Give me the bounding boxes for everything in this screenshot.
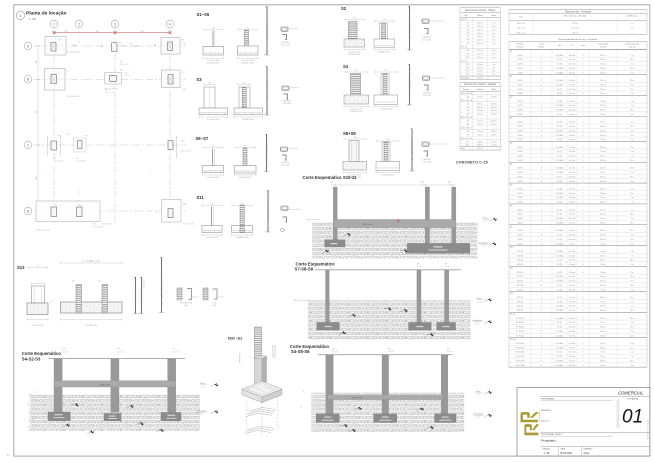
svg-text:8.0 mm: 8.0 mm bbox=[569, 151, 575, 153]
svg-text:8 m: 8 m bbox=[631, 181, 634, 183]
svg-text:6.3 mm: 6.3 mm bbox=[569, 122, 575, 124]
svg-text:19 m: 19 m bbox=[630, 68, 634, 70]
svg-text:S3-N2: S3-N2 bbox=[517, 105, 522, 107]
svg-text:4: 4 bbox=[541, 135, 542, 137]
svg-text:12.6 (A-D): 12.6 (A-D) bbox=[555, 67, 564, 70]
svg-text:1: 1 bbox=[541, 122, 542, 124]
svg-text:P12: P12 bbox=[98, 281, 101, 283]
svg-text:2: 2 bbox=[541, 276, 542, 278]
svg-text:3: 3 bbox=[583, 352, 584, 354]
svg-text:9: 9 bbox=[583, 105, 584, 107]
svg-text:S6-N1: S6-N1 bbox=[517, 168, 522, 170]
svg-text:B: B bbox=[27, 78, 29, 82]
svg-text:8: 8 bbox=[410, 32, 412, 33]
svg-text:8: 8 bbox=[268, 209, 270, 210]
svg-text:8: 8 bbox=[410, 90, 412, 91]
svg-text:P4: P4 bbox=[467, 33, 469, 35]
svg-text:P6: P6 bbox=[467, 40, 469, 42]
svg-text:5: 5 bbox=[583, 193, 584, 195]
svg-text:14.5 (A-D): 14.5 (A-D) bbox=[555, 146, 564, 149]
svg-text:S9-N1: S9-N1 bbox=[517, 230, 522, 232]
svg-text:2: 2 bbox=[541, 301, 542, 303]
svg-text:6: 6 bbox=[583, 197, 584, 199]
svg-text:Planta de locação: Planta de locação bbox=[26, 11, 67, 17]
svg-text:16 m: 16 m bbox=[630, 260, 634, 262]
svg-text:7: 7 bbox=[583, 209, 584, 211]
svg-text:9: 9 bbox=[583, 168, 584, 170]
svg-text:S1~S5: S1~S5 bbox=[197, 12, 210, 17]
svg-text:8: 8 bbox=[267, 146, 269, 147]
svg-text:10 x 30: 10 x 30 bbox=[118, 351, 123, 353]
svg-text:3.5 (R): 3.5 (R) bbox=[557, 181, 563, 183]
svg-text:205 cm: 205 cm bbox=[600, 285, 606, 287]
svg-text:10.0 mm: 10.0 mm bbox=[569, 327, 576, 329]
svg-text:2: 2 bbox=[541, 255, 542, 257]
svg-text:3: 3 bbox=[541, 110, 542, 112]
svg-text:0.09 m³: 0.09 m³ bbox=[477, 28, 483, 31]
svg-text:3.5 (R): 3.5 (R) bbox=[557, 272, 563, 274]
svg-text:0.23 m³: 0.23 m³ bbox=[477, 63, 483, 66]
svg-text:8: 8 bbox=[162, 269, 164, 270]
svg-text:6: 6 bbox=[541, 365, 542, 367]
svg-text:2 m²: 2 m² bbox=[492, 63, 496, 66]
svg-text:6.3 mm: 6.3 mm bbox=[569, 356, 575, 358]
svg-text:3.5 (R): 3.5 (R) bbox=[557, 126, 563, 128]
svg-text:B14 (15 x 45): B14 (15 x 45) bbox=[102, 224, 113, 226]
svg-text:10.0 mm: 10.0 mm bbox=[569, 64, 576, 66]
svg-text:6.3 mm: 6.3 mm bbox=[569, 160, 575, 162]
svg-text:9.4 (C): 9.4 (C) bbox=[557, 209, 563, 211]
svg-text:3.5 (R): 3.5 (R) bbox=[557, 264, 563, 266]
svg-text:6.3 mm: 6.3 mm bbox=[569, 230, 575, 232]
svg-text:19 m: 19 m bbox=[630, 80, 634, 82]
svg-text:4 m: 4 m bbox=[631, 218, 634, 220]
svg-text:S9-N3: S9-N3 bbox=[517, 239, 522, 241]
svg-text:0.12 m³: 0.12 m³ bbox=[477, 52, 483, 55]
svg-text:3.24 m²: 3.24 m² bbox=[491, 120, 497, 123]
svg-text:8: 8 bbox=[267, 39, 269, 40]
svg-text:4: 4 bbox=[541, 160, 542, 162]
svg-text:10.0 mm: 10.0 mm bbox=[569, 176, 576, 178]
svg-text:P6-P13-N2: P6-P13-N2 bbox=[516, 347, 525, 349]
svg-text:2: 2 bbox=[78, 22, 80, 26]
svg-text:S13-N3: S13-N3 bbox=[517, 306, 523, 308]
svg-text:4 Ø8 C=310: 4 Ø8 C=310 bbox=[144, 279, 146, 288]
svg-text:19 m: 19 m bbox=[630, 126, 634, 128]
svg-text:1.05 m³: 1.05 m³ bbox=[477, 120, 483, 123]
svg-text:10 x 30: 10 x 30 bbox=[461, 19, 467, 21]
svg-text:16 m: 16 m bbox=[630, 59, 634, 61]
svg-text:6.3 mm: 6.3 mm bbox=[569, 310, 575, 312]
svg-text:19 m: 19 m bbox=[630, 176, 634, 178]
svg-text:11 m: 11 m bbox=[630, 297, 634, 299]
svg-text:P11: P11 bbox=[72, 281, 75, 283]
svg-text:1.59 m²: 1.59 m² bbox=[491, 140, 497, 143]
svg-text:7 m: 7 m bbox=[631, 156, 634, 158]
svg-text:10 x 30: 10 x 30 bbox=[388, 351, 393, 353]
svg-text:10.0 mm: 10.0 mm bbox=[569, 130, 576, 132]
svg-text:9.4 (C): 9.4 (C) bbox=[557, 322, 563, 324]
svg-text:1: 1 bbox=[20, 14, 22, 18]
svg-text:4 x 10: 4 x 10 bbox=[445, 266, 449, 268]
svg-text:S6: S6 bbox=[510, 164, 512, 166]
svg-text:Fundação: Fundação bbox=[197, 409, 207, 412]
svg-text:2.89 m²: 2.89 m² bbox=[491, 113, 497, 116]
svg-text:S3-N4: S3-N4 bbox=[517, 114, 522, 116]
svg-text:Resumo de concreto - Pilares: Resumo de concreto - Pilares bbox=[465, 9, 496, 12]
svg-text:0.09 m³: 0.09 m³ bbox=[477, 21, 483, 24]
svg-text:8.0 mm: 8.0 mm bbox=[569, 235, 575, 237]
svg-text:8: 8 bbox=[267, 92, 269, 93]
svg-text:S10-N2: S10-N2 bbox=[517, 255, 523, 257]
svg-text:VB 15 x 40: VB 15 x 40 bbox=[100, 384, 111, 386]
svg-text:8: 8 bbox=[412, 154, 414, 155]
svg-text:3: 3 bbox=[583, 122, 584, 124]
svg-text:1 m²: 1 m² bbox=[492, 25, 496, 28]
svg-text:1 : 25: 1 : 25 bbox=[29, 17, 36, 21]
svg-text:P7: P7 bbox=[467, 43, 469, 45]
svg-text:6.3 mm: 6.3 mm bbox=[569, 135, 575, 137]
svg-text:3.5 (R): 3.5 (R) bbox=[557, 93, 563, 95]
svg-text:3: 3 bbox=[541, 352, 542, 354]
svg-text:2 m²: 2 m² bbox=[492, 66, 496, 69]
svg-text:S11: S11 bbox=[197, 195, 205, 200]
svg-text:S5 180x180x40: S5 180x180x40 bbox=[67, 96, 80, 98]
svg-text:S10-N1: S10-N1 bbox=[517, 251, 523, 253]
svg-text:8.0 mm: 8.0 mm bbox=[569, 347, 575, 349]
svg-text:7: 7 bbox=[583, 202, 584, 204]
svg-text:Propietário: Propietário bbox=[541, 439, 556, 443]
svg-text:Total geral: Total geral bbox=[461, 77, 470, 80]
svg-text:P2: P2 bbox=[63, 349, 65, 351]
svg-text:227 cm: 227 cm bbox=[600, 55, 606, 57]
svg-text:5 N4 Ø8 C=210: 5 N4 Ø8 C=210 bbox=[380, 108, 393, 110]
svg-text:76 cm: 76 cm bbox=[601, 151, 606, 153]
svg-text:220: 220 bbox=[355, 70, 358, 72]
svg-text:8.0 mm: 8.0 mm bbox=[569, 72, 575, 74]
svg-text:1: 1 bbox=[541, 318, 542, 320]
svg-text:P3: P3 bbox=[467, 29, 469, 31]
svg-text:9.4 (C): 9.4 (C) bbox=[557, 176, 563, 178]
svg-text:S7: S7 bbox=[510, 185, 512, 187]
svg-text:310 cm: 310 cm bbox=[600, 327, 606, 329]
svg-text:Qtd (Barras): Qtd (Barras) bbox=[627, 14, 638, 17]
svg-text:8: 8 bbox=[162, 304, 164, 305]
svg-text:4: 4 bbox=[541, 356, 542, 358]
svg-text:4: 4 bbox=[583, 301, 584, 303]
svg-text:P13: P13 bbox=[466, 71, 469, 73]
svg-text:-1.70: -1.70 bbox=[476, 417, 480, 419]
svg-text:CA50 - 6.3: CA50 - 6.3 bbox=[517, 22, 526, 25]
svg-text:10.0 mm: 10.0 mm bbox=[569, 239, 576, 241]
svg-text:25 x 40: 25 x 40 bbox=[461, 60, 467, 62]
svg-text:6: 6 bbox=[583, 365, 584, 367]
svg-text:12.6 (A-D): 12.6 (A-D) bbox=[555, 159, 564, 162]
svg-text:9.4 (C): 9.4 (C) bbox=[557, 260, 563, 262]
svg-text:96 cm: 96 cm bbox=[601, 264, 606, 266]
svg-text:8: 8 bbox=[412, 140, 414, 141]
svg-text:16 m: 16 m bbox=[630, 214, 634, 216]
svg-text:4 x 10: 4 x 10 bbox=[417, 266, 421, 268]
svg-text:9.4 (C): 9.4 (C) bbox=[557, 89, 563, 91]
svg-text:12.6 (A-D): 12.6 (A-D) bbox=[555, 305, 564, 308]
svg-text:14.5 (A-D): 14.5 (A-D) bbox=[555, 71, 564, 74]
svg-text:Nº PRANCHA: Nº PRANCHA bbox=[627, 397, 639, 400]
svg-text:180: 180 bbox=[387, 139, 390, 141]
svg-text:2: 2 bbox=[541, 347, 542, 349]
svg-text:0.12 m³: 0.12 m³ bbox=[477, 56, 483, 59]
svg-text:5 m: 5 m bbox=[631, 101, 634, 103]
svg-text:14.5 (A-D): 14.5 (A-D) bbox=[555, 254, 564, 257]
svg-text:6: 6 bbox=[583, 72, 584, 74]
svg-text:8: 8 bbox=[267, 11, 269, 12]
svg-text:3: 3 bbox=[541, 64, 542, 66]
svg-text:PROPRIETÁRIO: PROPRIETÁRIO bbox=[541, 397, 555, 400]
svg-text:S4-N1: S4-N1 bbox=[517, 122, 522, 124]
svg-text:-1.70: -1.70 bbox=[199, 414, 203, 416]
svg-text:Tabela de aço - Fundação: Tabela de aço - Fundação bbox=[565, 11, 592, 14]
svg-text:1: 1 bbox=[541, 297, 542, 299]
svg-text:P8: P8 bbox=[467, 50, 469, 52]
svg-text:180 x 180 x 40: 180 x 180 x 40 bbox=[461, 117, 473, 119]
svg-text:110: 110 bbox=[208, 83, 211, 85]
svg-text:162 cm: 162 cm bbox=[600, 361, 606, 363]
svg-text:0.90 m³: 0.90 m³ bbox=[477, 102, 483, 105]
svg-text:8.0 mm: 8.0 mm bbox=[569, 59, 575, 61]
svg-text:3: 3 bbox=[541, 281, 542, 283]
svg-text:16 m: 16 m bbox=[630, 310, 634, 312]
svg-text:6.3 mm: 6.3 mm bbox=[569, 243, 575, 245]
svg-text:8.0 mm: 8.0 mm bbox=[569, 301, 575, 303]
svg-text:S7: S7 bbox=[54, 158, 56, 160]
svg-text:3.5 (R): 3.5 (R) bbox=[557, 301, 563, 303]
svg-text:8: 8 bbox=[410, 46, 412, 47]
svg-text:6.3 mm: 6.3 mm bbox=[569, 222, 575, 224]
svg-text:3: 3 bbox=[541, 197, 542, 199]
svg-text:2: 2 bbox=[583, 172, 584, 174]
svg-text:Comprimento: Comprimento bbox=[598, 43, 608, 46]
svg-text:Autor: Autor bbox=[584, 452, 590, 455]
svg-text:S6-N2: S6-N2 bbox=[517, 172, 522, 174]
svg-text:8.0 mm: 8.0 mm bbox=[569, 172, 575, 174]
svg-text:4 N3 Ø8 C=162: 4 N3 Ø8 C=162 bbox=[207, 62, 220, 64]
svg-text:P7: P7 bbox=[330, 267, 332, 269]
svg-text:-2.60: -2.60 bbox=[182, 89, 186, 91]
svg-text:96 cm: 96 cm bbox=[601, 322, 606, 324]
svg-text:14.5 (A-D): 14.5 (A-D) bbox=[555, 171, 564, 174]
svg-text:P11: P11 bbox=[421, 182, 424, 184]
svg-text:12.6 (A-D): 12.6 (A-D) bbox=[555, 217, 564, 220]
svg-text:3: 3 bbox=[541, 327, 542, 329]
svg-text:S8-N1: S8-N1 bbox=[517, 209, 522, 211]
svg-text:5 m: 5 m bbox=[631, 93, 634, 95]
svg-text:10 x 30: 10 x 30 bbox=[332, 352, 337, 354]
svg-text:5 m: 5 m bbox=[631, 289, 634, 291]
svg-text:6.3 mm: 6.3 mm bbox=[569, 147, 575, 149]
svg-text:12.6 (A-D): 12.6 (A-D) bbox=[555, 79, 564, 82]
svg-text:P6: P6 bbox=[125, 73, 127, 75]
svg-text:-2.60 | -2.20: -2.60 | -2.20 bbox=[105, 92, 114, 94]
svg-text:8: 8 bbox=[162, 297, 164, 298]
svg-text:360: 360 bbox=[96, 31, 99, 33]
svg-text:12.6 (A-D): 12.6 (A-D) bbox=[555, 342, 564, 345]
svg-text:150 cm: 150 cm bbox=[600, 188, 606, 190]
svg-text:0.43 m³: 0.43 m³ bbox=[477, 95, 483, 98]
svg-text:8: 8 bbox=[583, 93, 584, 95]
svg-text:3: 3 bbox=[583, 114, 584, 116]
svg-text:1 m²: 1 m² bbox=[492, 52, 496, 55]
svg-text:9.4 (C): 9.4 (C) bbox=[557, 151, 563, 153]
svg-text:S1-N1: S1-N1 bbox=[517, 55, 522, 57]
svg-text:1: 1 bbox=[541, 55, 542, 57]
svg-text:14.5 (A-D): 14.5 (A-D) bbox=[555, 280, 564, 283]
svg-text:11 m: 11 m bbox=[630, 193, 634, 195]
svg-text:P6-P13-N5: P6-P13-N5 bbox=[516, 361, 525, 363]
svg-text:6.3 mm: 6.3 mm bbox=[569, 68, 575, 70]
svg-text:8: 8 bbox=[267, 85, 269, 86]
svg-text:6.3 mm: 6.3 mm bbox=[569, 55, 575, 57]
svg-text:P12: P12 bbox=[448, 182, 451, 184]
svg-text:96 cm: 96 cm bbox=[601, 218, 606, 220]
svg-text:76 cm: 76 cm bbox=[601, 101, 606, 103]
svg-text:0.09 m³: 0.09 m³ bbox=[477, 32, 483, 35]
svg-text:S13 65 x 245 x 30: S13 65 x 245 x 30 bbox=[36, 230, 50, 232]
svg-text:16 m: 16 m bbox=[630, 110, 634, 112]
svg-text:3: 3 bbox=[541, 156, 542, 158]
svg-text:14.5 (A-D): 14.5 (A-D) bbox=[555, 334, 564, 337]
svg-text:4 N5 Ø8 C=205: 4 N5 Ø8 C=205 bbox=[242, 119, 255, 121]
svg-text:154.2 kgf: 154.2 kgf bbox=[571, 28, 579, 30]
svg-text:14.5 (A-D): 14.5 (A-D) bbox=[555, 309, 564, 312]
svg-text:10 x 30: 10 x 30 bbox=[119, 46, 125, 48]
svg-text:5: 5 bbox=[583, 243, 584, 245]
svg-text:S3-N1: S3-N1 bbox=[517, 101, 522, 103]
svg-text:VB 15 x 40: VB 15 x 40 bbox=[363, 224, 374, 226]
svg-text:P5: P5 bbox=[467, 36, 469, 38]
svg-text:2: 2 bbox=[541, 151, 542, 153]
svg-text:Comprimento total: Comprimento total bbox=[625, 43, 639, 46]
svg-text:310 cm: 310 cm bbox=[600, 126, 606, 128]
svg-text:6.3 mm: 6.3 mm bbox=[569, 285, 575, 287]
svg-text:9: 9 bbox=[583, 276, 584, 278]
svg-text:8: 8 bbox=[410, 25, 412, 26]
svg-text:10.0 mm: 10.0 mm bbox=[569, 352, 576, 354]
svg-text:S2-N2: S2-N2 bbox=[517, 84, 522, 86]
svg-text:7: 7 bbox=[583, 151, 584, 153]
svg-text:S13: S13 bbox=[17, 265, 25, 270]
svg-text:310 cm: 310 cm bbox=[600, 80, 606, 82]
svg-text:1.05 m³: 1.05 m³ bbox=[477, 123, 483, 126]
svg-text:Volume: Volume bbox=[477, 15, 485, 17]
svg-text:1 m²: 1 m² bbox=[492, 56, 496, 59]
svg-text:8: 8 bbox=[583, 264, 584, 266]
svg-text:S2-N1: S2-N1 bbox=[517, 80, 522, 82]
svg-text:2: 2 bbox=[541, 214, 542, 216]
svg-text:S9-N4: S9-N4 bbox=[517, 243, 522, 245]
svg-text:5 m: 5 m bbox=[631, 139, 634, 141]
svg-text:120 x 120 x 30: 120 x 120 x 30 bbox=[461, 93, 473, 95]
svg-text:S6: S6 bbox=[105, 90, 107, 92]
svg-text:4 N4 Ø8 C=150: 4 N4 Ø8 C=150 bbox=[239, 177, 252, 179]
svg-text:5: 5 bbox=[583, 68, 584, 70]
svg-text:2.89 m²: 2.89 m² bbox=[491, 102, 497, 105]
svg-text:10 x 30 x 30: 10 x 30 x 30 bbox=[181, 151, 190, 153]
svg-text:8: 8 bbox=[267, 99, 269, 100]
svg-text:S11-N3: S11-N3 bbox=[517, 281, 523, 283]
svg-text:8.0 mm: 8.0 mm bbox=[569, 193, 575, 195]
svg-text:S8: S8 bbox=[510, 206, 512, 208]
svg-text:c/14 C=110: c/14 C=110 bbox=[280, 165, 289, 167]
svg-text:8: 8 bbox=[268, 195, 270, 196]
svg-text:3.5 (R): 3.5 (R) bbox=[557, 356, 563, 358]
svg-text:S13-N2: S13-N2 bbox=[517, 301, 523, 303]
svg-text:5: 5 bbox=[583, 80, 584, 82]
svg-text:S4-S5-S6: S4-S5-S6 bbox=[291, 349, 310, 354]
svg-text:2: 2 bbox=[583, 110, 584, 112]
svg-text:5: 5 bbox=[541, 361, 542, 363]
svg-text:65: 65 bbox=[37, 266, 39, 268]
svg-text:S1: S1 bbox=[510, 51, 512, 53]
svg-text:1 m²: 1 m² bbox=[492, 49, 496, 52]
svg-text:96 cm: 96 cm bbox=[601, 114, 606, 116]
svg-text:4: 4 bbox=[583, 126, 584, 128]
svg-text:205 cm: 205 cm bbox=[600, 239, 606, 241]
svg-text:3.5 (R): 3.5 (R) bbox=[557, 156, 563, 158]
svg-text:4 m: 4 m bbox=[631, 322, 634, 324]
svg-text:S3: S3 bbox=[197, 77, 203, 82]
svg-text:245 x 65 x 30: 245 x 65 x 30 bbox=[461, 138, 472, 140]
svg-text:S6-N3: S6-N3 bbox=[517, 176, 522, 178]
svg-text:7: 7 bbox=[583, 139, 584, 141]
svg-text:P12: P12 bbox=[78, 205, 81, 207]
svg-text:235: 235 bbox=[65, 31, 68, 33]
svg-text:P5: P5 bbox=[388, 349, 390, 351]
svg-text:8: 8 bbox=[267, 71, 269, 72]
svg-text:1: 1 bbox=[541, 168, 542, 170]
svg-text:6.3 mm: 6.3 mm bbox=[569, 209, 575, 211]
svg-text:3: 3 bbox=[114, 22, 116, 26]
svg-text:8: 8 bbox=[583, 272, 584, 274]
svg-text:8: 8 bbox=[410, 11, 412, 12]
svg-text:16 m: 16 m bbox=[630, 160, 634, 162]
svg-text:P1-P5-N4: P1-P5-N4 bbox=[516, 331, 524, 333]
svg-text:95: 95 bbox=[28, 426, 30, 428]
svg-text:205 cm: 205 cm bbox=[600, 297, 606, 299]
svg-text:S4: S4 bbox=[467, 131, 469, 133]
svg-text:8: 8 bbox=[412, 161, 414, 162]
svg-text:P1-P5-N3: P1-P5-N3 bbox=[516, 327, 524, 329]
svg-text:1 m²: 1 m² bbox=[492, 39, 496, 42]
svg-text:8: 8 bbox=[583, 101, 584, 103]
svg-text:11 m: 11 m bbox=[630, 347, 634, 349]
svg-text:3: 3 bbox=[541, 306, 542, 308]
svg-text:227 cm: 227 cm bbox=[600, 255, 606, 257]
svg-text:3.24 m²: 3.24 m² bbox=[491, 123, 497, 126]
svg-text:1: 1 bbox=[541, 209, 542, 211]
svg-text:205 cm: 205 cm bbox=[600, 193, 606, 195]
svg-text:4 m: 4 m bbox=[631, 114, 634, 116]
svg-text:S9-N2: S9-N2 bbox=[517, 235, 522, 237]
svg-text:10 x 30: 10 x 30 bbox=[447, 351, 452, 353]
svg-text:S6-N4: S6-N4 bbox=[517, 181, 522, 183]
svg-text:8.0 mm: 8.0 mm bbox=[569, 289, 575, 291]
svg-text:S4: S4 bbox=[510, 118, 512, 120]
svg-text:S 60 x 60 x 30: S 60 x 60 x 30 bbox=[183, 224, 194, 226]
svg-text:S4-N3: S4-N3 bbox=[517, 130, 522, 132]
svg-text:1: 1 bbox=[541, 147, 542, 149]
svg-text:4 N3 Ø8 C=162: 4 N3 Ø8 C=162 bbox=[241, 62, 254, 64]
svg-text:11 m: 11 m bbox=[630, 335, 634, 337]
